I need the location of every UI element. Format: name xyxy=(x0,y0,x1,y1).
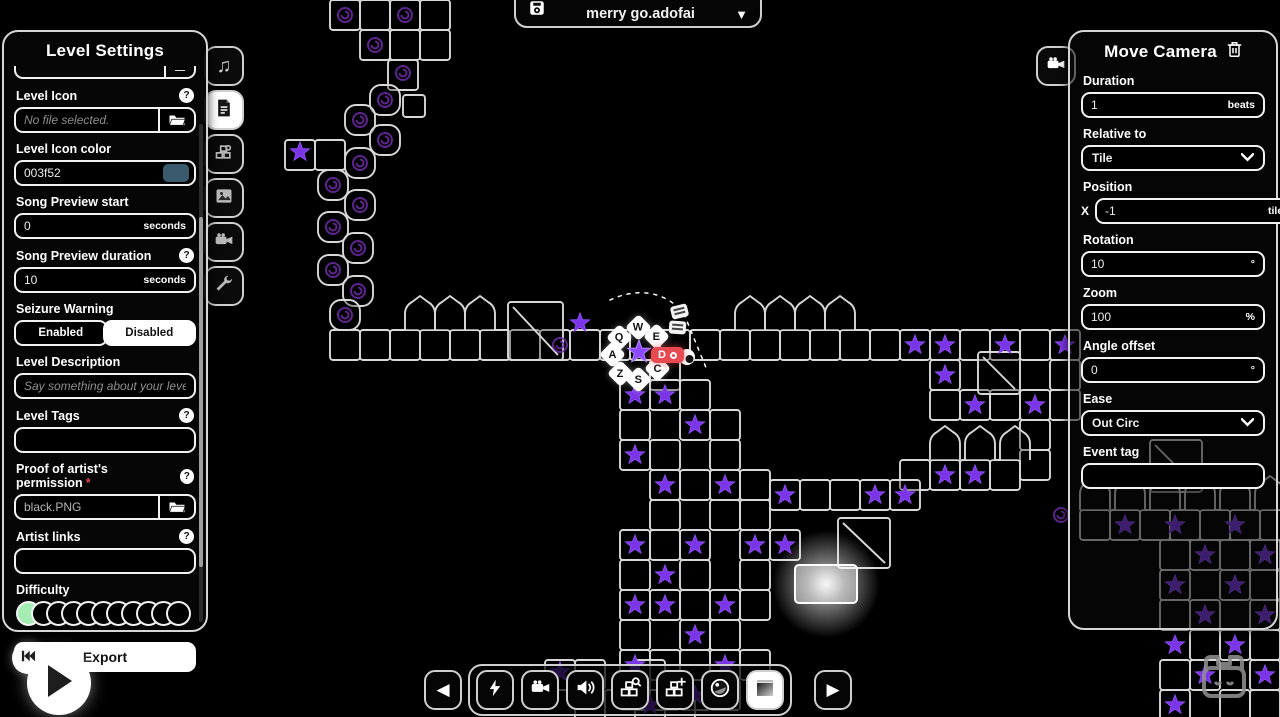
active-key-label: D xyxy=(658,349,666,361)
relative-to-value: Tile xyxy=(1092,151,1112,165)
scrolled-field-partial[interactable]: — xyxy=(14,66,196,79)
angle-offset-input[interactable] xyxy=(1083,363,1251,377)
caret-down-icon[interactable]: ▼ xyxy=(735,7,748,22)
relative-to-select[interactable]: Tile xyxy=(1081,145,1265,171)
rotation-input[interactable] xyxy=(1083,257,1251,271)
tab-misc-settings[interactable] xyxy=(204,266,244,306)
help-icon[interactable]: ? xyxy=(179,88,194,103)
decoration-add-icon xyxy=(664,676,687,704)
wrench-icon xyxy=(215,274,234,298)
event-tag-input[interactable] xyxy=(1083,469,1263,483)
camera-icon xyxy=(214,230,234,255)
prev-event-button[interactable]: ◀ xyxy=(424,670,462,710)
next-event-button[interactable]: ▶ xyxy=(814,670,852,710)
artist-permission-label: Proof of artist's permission* xyxy=(16,462,180,490)
ease-value: Out Circ xyxy=(1092,416,1139,430)
song-preview-duration-field: seconds xyxy=(14,267,196,293)
difficulty-circle-11[interactable] xyxy=(166,601,191,626)
level-settings-panel: Level Settings — Level Icon ? Level Icon… xyxy=(2,30,208,632)
level-description-field xyxy=(14,373,196,399)
position-label: Position xyxy=(1083,180,1132,194)
chevron-down-icon xyxy=(1241,151,1254,165)
help-icon[interactable]: ? xyxy=(179,529,194,544)
degrees-suffix: ° xyxy=(1251,258,1263,270)
x-axis-label: X xyxy=(1081,204,1089,218)
color-swatch[interactable] xyxy=(163,164,189,182)
decoration-select-icon xyxy=(619,676,642,704)
level-tags-input[interactable] xyxy=(16,433,194,447)
degrees-suffix: ° xyxy=(1251,364,1263,376)
move-camera-title: Move Camera xyxy=(1104,42,1217,62)
relative-to-label: Relative to xyxy=(1083,127,1146,141)
decoration-add-button[interactable] xyxy=(656,670,694,710)
media-frame-icon xyxy=(753,676,777,705)
video-camera-icon xyxy=(1046,54,1066,79)
tiles-suffix: tiles xyxy=(1268,205,1280,217)
artist-links-label: Artist links xyxy=(16,530,81,544)
song-preview-duration-input[interactable] xyxy=(16,273,143,287)
level-icon-color-field xyxy=(14,160,196,186)
rotation-label: Rotation xyxy=(1083,233,1134,247)
ease-label: Ease xyxy=(1083,392,1112,406)
beats-suffix: beats xyxy=(1228,99,1263,111)
prev-arrow-icon: ◀ xyxy=(436,680,449,700)
angle-offset-label: Angle offset xyxy=(1083,339,1155,353)
skip-to-start-icon xyxy=(20,649,36,668)
level-settings-title: Level Settings xyxy=(14,32,196,63)
zoom-input[interactable] xyxy=(1083,310,1246,324)
help-icon[interactable]: ? xyxy=(179,408,194,423)
zoom-label: Zoom xyxy=(1083,286,1117,300)
seizure-enabled-option[interactable]: Enabled xyxy=(14,320,108,346)
tab-camera[interactable] xyxy=(204,222,244,262)
difficulty-selector[interactable] xyxy=(16,601,196,626)
panel-scrollbar-thumb[interactable] xyxy=(199,217,203,567)
file-selector[interactable]: merry go.adofai ▼ xyxy=(514,0,762,28)
artist-links-field xyxy=(14,548,196,574)
event-marker-icon xyxy=(669,320,687,334)
decorations-icon xyxy=(214,142,234,167)
level-icon-input[interactable] xyxy=(16,113,158,127)
trash-icon[interactable] xyxy=(1227,41,1242,63)
event-tag-label: Event tag xyxy=(1083,445,1139,459)
rewind-button[interactable] xyxy=(12,642,44,674)
help-icon[interactable]: ? xyxy=(179,248,194,263)
seizure-warning-toggle: Enabled Disabled xyxy=(14,320,196,346)
decoration-select-button[interactable] xyxy=(611,670,649,710)
tab-song[interactable]: ♫ xyxy=(204,46,244,86)
percent-suffix: % xyxy=(1246,311,1263,323)
level-icon-field xyxy=(14,107,196,133)
current-level-filename: merry go.adofai xyxy=(546,6,735,22)
effects-filter-button[interactable] xyxy=(476,670,514,710)
camera-filter-button[interactable] xyxy=(521,670,559,710)
move-camera-panel: Move Camera Duration beats Relative to T… xyxy=(1068,30,1278,630)
next-arrow-icon: ▶ xyxy=(826,680,839,700)
artist-permission-input[interactable] xyxy=(16,500,158,514)
lens-preview-button[interactable] xyxy=(701,670,739,710)
stepper-button[interactable]: — xyxy=(164,66,194,77)
active-key-badge: D xyxy=(651,347,684,363)
chevron-down-icon xyxy=(1241,416,1254,430)
song-preview-start-label: Song Preview start xyxy=(16,195,129,209)
zoom-field: % xyxy=(1081,304,1265,330)
event-filter-toolbar xyxy=(468,664,792,716)
duration-field: beats xyxy=(1081,92,1265,118)
lens-icon xyxy=(709,677,731,704)
speaker-icon xyxy=(575,677,596,703)
seizure-disabled-option[interactable]: Disabled xyxy=(103,320,197,346)
tab-decorations[interactable] xyxy=(204,134,244,174)
rotation-field: ° xyxy=(1081,251,1265,277)
tab-level-settings[interactable] xyxy=(204,90,244,130)
level-description-input[interactable] xyxy=(16,379,194,393)
required-asterisk: * xyxy=(86,476,91,490)
browse-folder-button[interactable] xyxy=(158,109,194,131)
browse-folder-button[interactable] xyxy=(158,496,194,518)
song-preview-start-field: seconds xyxy=(14,213,196,239)
level-tags-field xyxy=(14,427,196,453)
level-icon-label: Level Icon xyxy=(16,89,77,103)
seconds-suffix: seconds xyxy=(143,220,194,232)
music-note-icon: ♫ xyxy=(217,55,232,78)
lightning-icon xyxy=(486,678,504,703)
ease-select[interactable]: Out Circ xyxy=(1081,410,1265,436)
level-description-label: Level Description xyxy=(16,355,120,369)
tab-background-image[interactable] xyxy=(204,178,244,218)
level-icon-color-label: Level Icon color xyxy=(16,142,111,156)
hold-ring-icon xyxy=(670,352,677,359)
seizure-warning-label: Seizure Warning xyxy=(16,302,113,316)
artist-links-input[interactable] xyxy=(16,554,194,568)
level-tags-label: Level Tags xyxy=(16,409,80,423)
song-preview-duration-label: Song Preview duration xyxy=(16,249,151,263)
difficulty-label: Difficulty xyxy=(16,583,69,597)
media-preview-button[interactable] xyxy=(746,670,784,710)
play-icon xyxy=(44,664,74,703)
level-icon-color-input[interactable] xyxy=(16,166,163,180)
video-camera-icon xyxy=(530,677,551,703)
duration-label: Duration xyxy=(1083,74,1134,88)
artist-permission-field xyxy=(14,494,196,520)
duration-input[interactable] xyxy=(1083,98,1228,112)
help-icon[interactable]: ? xyxy=(180,469,194,484)
image-icon xyxy=(214,186,234,211)
cat-mask-icon xyxy=(1196,650,1252,707)
save-icon xyxy=(528,0,546,22)
song-preview-start-input[interactable] xyxy=(16,219,143,233)
file-settings-icon xyxy=(214,98,234,123)
position-x-field: tiles xyxy=(1095,198,1280,224)
position-x-input[interactable] xyxy=(1097,204,1268,218)
event-tag-field xyxy=(1081,463,1265,489)
angle-offset-field: ° xyxy=(1081,357,1265,383)
sound-filter-button[interactable] xyxy=(566,670,604,710)
seconds-suffix: seconds xyxy=(143,274,194,286)
